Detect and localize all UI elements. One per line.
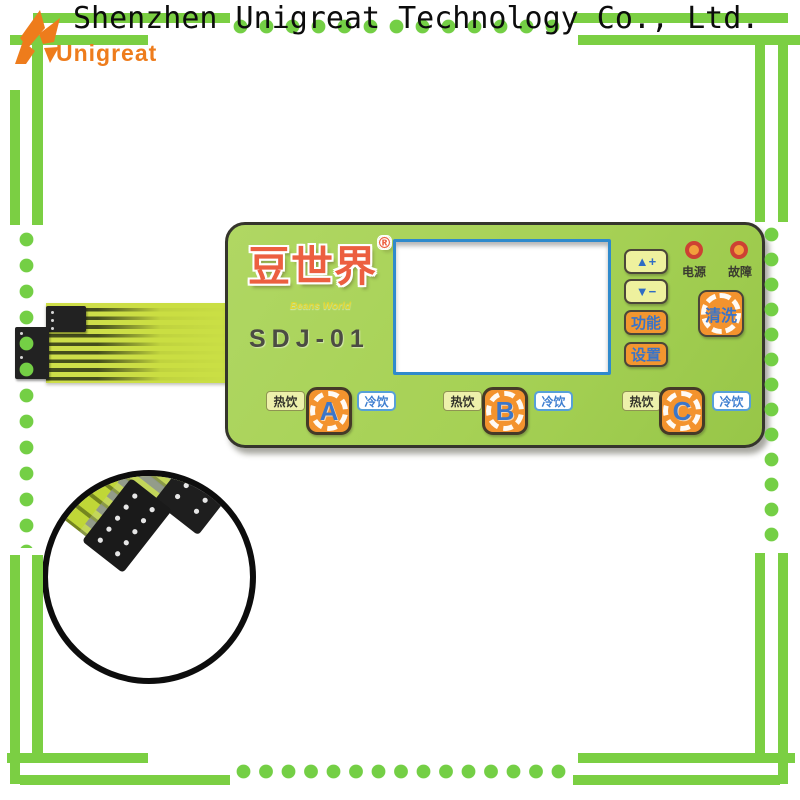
power-led-icon	[685, 241, 703, 259]
dispense-button-b: B	[482, 387, 528, 435]
hot-drink-label-b: 热饮	[443, 391, 482, 411]
cold-drink-label-a: 冷饮	[357, 391, 396, 411]
power-led-label: 电源	[671, 263, 717, 280]
brand-text: 豆世界	[248, 242, 377, 291]
fault-led-label: 故障	[717, 263, 763, 280]
frame-bar	[778, 553, 788, 784]
fault-led-icon	[730, 241, 748, 259]
function-button: 功能	[624, 310, 668, 335]
frame-dots-bottom	[236, 764, 572, 779]
hot-drink-label-a: 热饮	[266, 391, 305, 411]
frame-bar	[20, 775, 230, 785]
dispense-button-a: A	[306, 387, 352, 435]
hot-drink-label-c: 热饮	[622, 391, 661, 411]
frame-bar	[10, 90, 20, 225]
logo-wordmark: Unigreat	[56, 40, 157, 67]
registered-mark: ®	[377, 234, 393, 252]
membrane-switch-panel: 豆世界® Beans World SDJ-01 ▲+ ▼− 功能 设置 电源 故…	[225, 222, 765, 448]
cold-drink-label-b: 冷饮	[534, 391, 573, 411]
brand-logo: 豆世界®	[248, 233, 393, 294]
frame-dots-left	[19, 232, 34, 548]
up-plus-button: ▲+	[624, 249, 668, 274]
frame-bar	[7, 753, 148, 763]
dispense-button-c: C	[659, 387, 705, 435]
model-number: SDJ-01	[249, 325, 370, 354]
company-title: Shenzhen Unigreat Technology Co., Ltd.	[73, 1, 759, 36]
clean-button: 清洗	[698, 290, 744, 337]
frame-bar	[10, 555, 20, 784]
frame-bar	[755, 553, 765, 763]
frame-bar	[578, 35, 800, 45]
frame-dots-right	[764, 227, 779, 549]
frame-bar	[578, 753, 795, 763]
page: Unigreat Shenzhen Unigreat Technology Co…	[0, 0, 800, 800]
connector-closeup-image	[48, 476, 250, 678]
down-minus-button: ▼−	[624, 279, 668, 304]
lcd-window	[393, 239, 611, 375]
connector-closeup-inset	[42, 470, 256, 684]
cold-drink-label-c: 冷饮	[712, 391, 751, 411]
settings-button: 设置	[624, 342, 668, 367]
frame-bar	[32, 555, 43, 763]
ribbon-connector-upper	[46, 306, 86, 332]
frame-bar	[573, 775, 780, 785]
brand-subtext: Beans World	[290, 301, 351, 312]
frame-bar	[32, 45, 43, 225]
frame-bar	[778, 45, 788, 222]
frame-bar	[755, 45, 765, 222]
